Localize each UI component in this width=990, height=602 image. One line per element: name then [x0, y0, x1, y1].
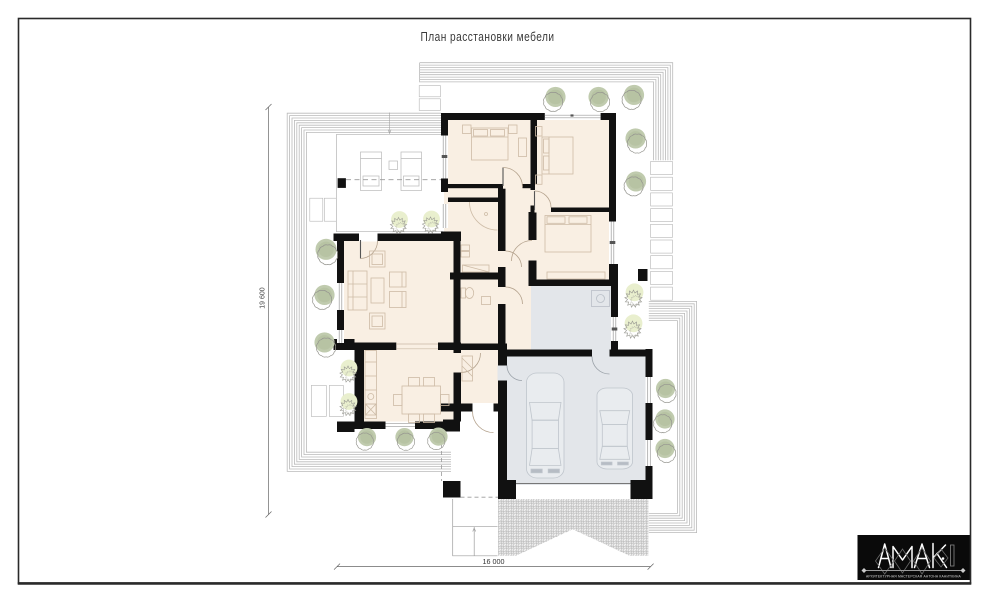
- svg-text:План расстановки мебели: План расстановки мебели: [421, 29, 555, 44]
- svg-text:АРХИТЕКТУРНАЯ МАСТЕРСКАЯ АНТОН: АРХИТЕКТУРНАЯ МАСТЕРСКАЯ АНТОНА КАНИТКИН…: [866, 575, 962, 579]
- svg-text:16 000: 16 000: [483, 557, 505, 566]
- svg-text:19 600: 19 600: [260, 287, 267, 309]
